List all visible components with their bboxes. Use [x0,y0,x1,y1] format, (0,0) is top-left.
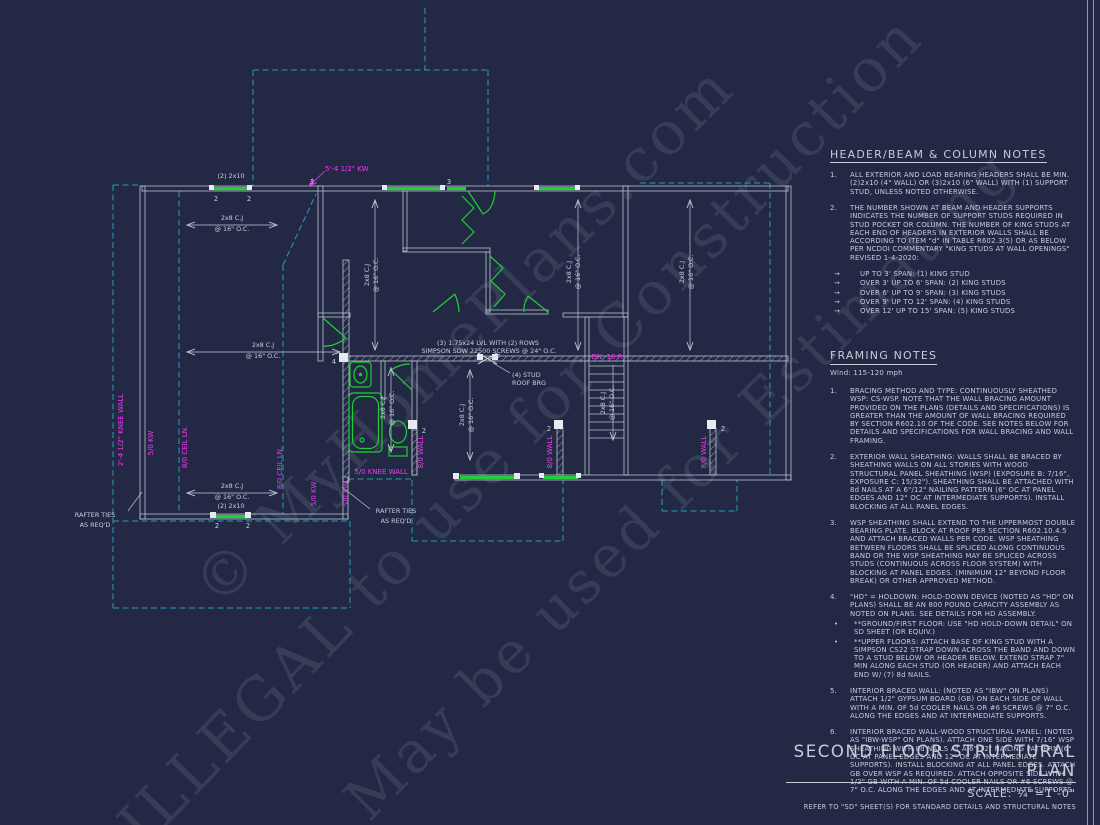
holdown-bullets: •**GROUND/FIRST FLOOR: USE "HD HOLD-DOWN… [830,620,1077,679]
note-item: 4. "HD" = HOLDOWN: HOLD-DOWN DEVICE (NOT… [830,593,1077,618]
door-leaf [323,318,346,338]
bullet-row: →OVER 12' UP TO 15' SPAN: (5) KING STUDS [834,307,1077,315]
bullet-arrow-icon: → [834,270,860,278]
bullet-text: **GROUND/FIRST FLOOR: USE "HD HOLD-DOWN … [854,620,1077,637]
wind-speed-note: Wind: 115-120 mph [830,369,1077,377]
joist-spacing: @ 16" O.C. [687,255,695,290]
roof-brg-label: (4) STUD [512,371,541,379]
doors-and-fixtures [323,191,548,456]
note-number: 4. [830,593,850,618]
note-item: 5. INTERIOR BRACED WALL: (NOTED AS "IBW"… [830,687,1077,720]
joist-spacing: @ 16" O.C. [467,398,475,433]
knee-wall-label: 2'-4 1/2" KNEE WALL [117,394,125,466]
door-swing-arc [483,191,495,214]
knee-wall-label: 5/0 KW [310,482,318,507]
note-text: BRACING METHOD AND TYPE: CONTINUOUSLY SH… [850,387,1077,445]
rafter-ties-label: AS REQ'D [381,517,412,525]
stair-direction-label: DN. 16 R [591,353,622,361]
header-size-label: (2) 2x10 [217,172,244,180]
bullet-row: •**GROUND/FIRST FLOOR: USE "HD HOLD-DOWN… [834,620,1077,637]
joist-spacing: @ 16" O.C. [388,391,396,426]
bifold-door-zigzag [462,196,474,244]
joist-label: 2x8 C.J [252,341,274,349]
header-notes-title: HEADER/BEAM & COLUMN NOTES [830,148,1047,163]
note-item: 1. BRACING METHOD AND TYPE: CONTINUOUSLY… [830,387,1077,445]
door-leaf [433,294,455,312]
plan-sheet: © MyHomePlans.com ILLEGAL to use for Con… [0,0,1100,825]
roof-brg-label: ROOF BRG [512,379,546,387]
door-swing-arc [455,294,459,312]
note-item: 1. ALL EXTERIOR AND LOAD BEARING HEADERS… [830,171,1077,196]
sheet-scale: SCALE: ¼"=1'-0" [786,787,1076,800]
note-item: 3. WSP SHEATHING SHALL EXTEND TO THE UPP… [830,519,1077,585]
bullet-arrow-icon: → [834,279,860,287]
joist-label: 2x8 C.J [678,261,686,283]
stud-count: 2 [247,195,251,203]
lvl-beam-label: SIMPSON SDW 22500 SCREWS @ 24" O.C. [421,347,556,355]
bullet-row: →UP TO 3' SPAN: (1) KING STUD [834,270,1077,278]
ceiling-line-label: 8/0 CEIL LN. [276,447,284,489]
bullet-arrow-icon: → [834,289,860,297]
joist-label: 2x8 C.J [458,404,466,426]
wall-height-label: 8/0 WALL [700,436,708,469]
bifold-door-zigzag [490,256,505,307]
wall-height-label: 8/0 WALL [417,436,425,469]
joist-spacing: @ 16" O.C. [574,255,582,290]
bullet-dot-icon: • [834,620,854,637]
bathtub-inner [353,397,379,449]
bullet-arrow-icon: → [834,298,860,306]
notes-panel: HEADER/BEAM & COLUMN NOTES 1. ALL EXTERI… [830,148,1077,802]
joist-label: 2x8 C.J [599,392,607,414]
bathroom-door-leaf [391,370,412,390]
bathroom-door-arc [391,364,410,370]
wall-height-label: 8/0 WALL [546,436,554,469]
sink-drain [360,374,362,376]
joist-spacing: @ 16" O.C. [372,258,380,293]
joist-spacing: @ 16" O.C. [215,225,250,233]
framing-notes-title: FRAMING NOTES [830,349,937,364]
ceiling-line-label: 8/0 CEIL LN. [181,426,189,468]
knee-wall-label: 5/0 KW [342,482,350,507]
stud-count: 2 [547,425,551,433]
joist-label: 2x8 C.J [565,261,573,283]
bullet-text: OVER 6' UP TO 9' SPAN: (3) KING STUDS [860,289,1006,297]
note-number: 1. [830,387,850,445]
stud-count: 2 [246,522,250,530]
note-text: WSP SHEATHING SHALL EXTEND TO THE UPPERM… [850,519,1077,585]
bullet-text: OVER 12' UP TO 15' SPAN: (5) KING STUDS [860,307,1015,315]
toilet-tank [389,447,407,456]
note-text: INTERIOR BRACED WALL: (NOTED AS "IBW" ON… [850,687,1077,720]
stud-count: 2 [214,195,218,203]
sheet-border-line [1087,0,1088,825]
bullet-text: OVER 9' UP TO 12' SPAN: (4) KING STUDS [860,298,1010,306]
stud-count: 3 [310,178,314,186]
joist-label: 2x8 C.J [379,397,387,419]
knee-wall-label: 5/0 KW [147,431,155,456]
joist-spacing: @ 16" O.C. [246,352,281,360]
stud-count: 2 [422,427,426,435]
stud-count: 2 [215,522,219,530]
stud-count: 3 [447,178,451,186]
bullet-row: →OVER 9' UP TO 12' SPAN: (4) KING STUDS [834,298,1077,306]
plan-annotations: 2x8 C.J @ 16" O.C. 2x8 C.J @ 16" O.C. 2x… [75,172,725,530]
lvl-beam-label: (3) 1.75x24 LVL WITH (2) ROWS [437,339,539,347]
note-number: 5. [830,687,850,720]
bullet-text: UP TO 3' SPAN: (1) KING STUD [860,270,970,278]
rafter-ties-label: RAFTER TIES [75,511,115,519]
bullet-dot-icon: • [834,638,854,679]
note-text: "HD" = HOLDOWN: HOLD-DOWN DEVICE (NOTED … [850,593,1077,618]
note-number: 2. [830,453,850,511]
framing-notes-section: FRAMING NOTES Wind: 115-120 mph 1. BRACI… [830,349,1077,794]
bullet-text: **UPPER FLOORS: ATTACH BASE OF KING STUD… [854,638,1077,679]
sheet-reference-note: REFER TO "SD" SHEET(S) FOR STANDARD DETA… [786,803,1076,811]
tub-drain [360,438,364,442]
sheet-border-line [1093,0,1094,825]
title-block: SECOND FLOOR STRUCTURAL PLAN SCALE: ¼"=1… [786,742,1076,811]
king-stud-bullets: →UP TO 3' SPAN: (1) KING STUD →OVER 3' U… [830,270,1077,315]
bullet-row: →OVER 6' UP TO 9' SPAN: (3) KING STUDS [834,289,1077,297]
door-swing-arc [323,338,346,346]
note-text: THE NUMBER SHOWN AT BEAM AND HEADER SUPP… [850,204,1077,262]
knee-wall-label: 5/0 KNEE WALL [354,468,408,476]
joist-spacing: @ 16" O.C. [215,493,250,501]
knee-wall-dim-label: 5'-4 1/2" KW [325,165,369,173]
note-item: 2. THE NUMBER SHOWN AT BEAM AND HEADER S… [830,204,1077,262]
sheet-title: SECOND FLOOR STRUCTURAL PLAN [786,742,1076,783]
joist-label: 2x8 C.J [221,482,243,490]
note-number: 3. [830,519,850,585]
rafter-ties-label: RAFTER TIES [376,507,416,515]
note-item: 2. EXTERIOR WALL SHEATHING: WALLS SHALL … [830,453,1077,511]
bullet-text: OVER 3' UP TO 6' SPAN: (2) KING STUDS [860,279,1006,287]
bullet-row: →OVER 3' UP TO 6' SPAN: (2) KING STUDS [834,279,1077,287]
note-text: EXTERIOR WALL SHEATHING: WALLS SHALL BE … [850,453,1077,511]
bathtub [349,393,382,452]
joist-spacing: @ 16" O.C. [608,386,616,421]
bullet-row: •**UPPER FLOORS: ATTACH BASE OF KING STU… [834,638,1077,679]
header-size-label: (2) 2x10 [217,502,244,510]
note-number: 2. [830,204,850,262]
stud-count: 4 [332,358,336,366]
rafter-ties-label: AS REQ'D [80,521,111,529]
joist-label: 2x8 C.J [221,214,243,222]
header-notes-section: HEADER/BEAM & COLUMN NOTES 1. ALL EXTERI… [830,148,1077,315]
bullet-arrow-icon: → [834,307,860,315]
note-text: ALL EXTERIOR AND LOAD BEARING HEADERS SH… [850,171,1077,196]
door-leaf [468,191,483,214]
joist-label: 2x8 C.J [363,264,371,286]
note-number: 1. [830,171,850,196]
stud-count: 2 [721,425,725,433]
